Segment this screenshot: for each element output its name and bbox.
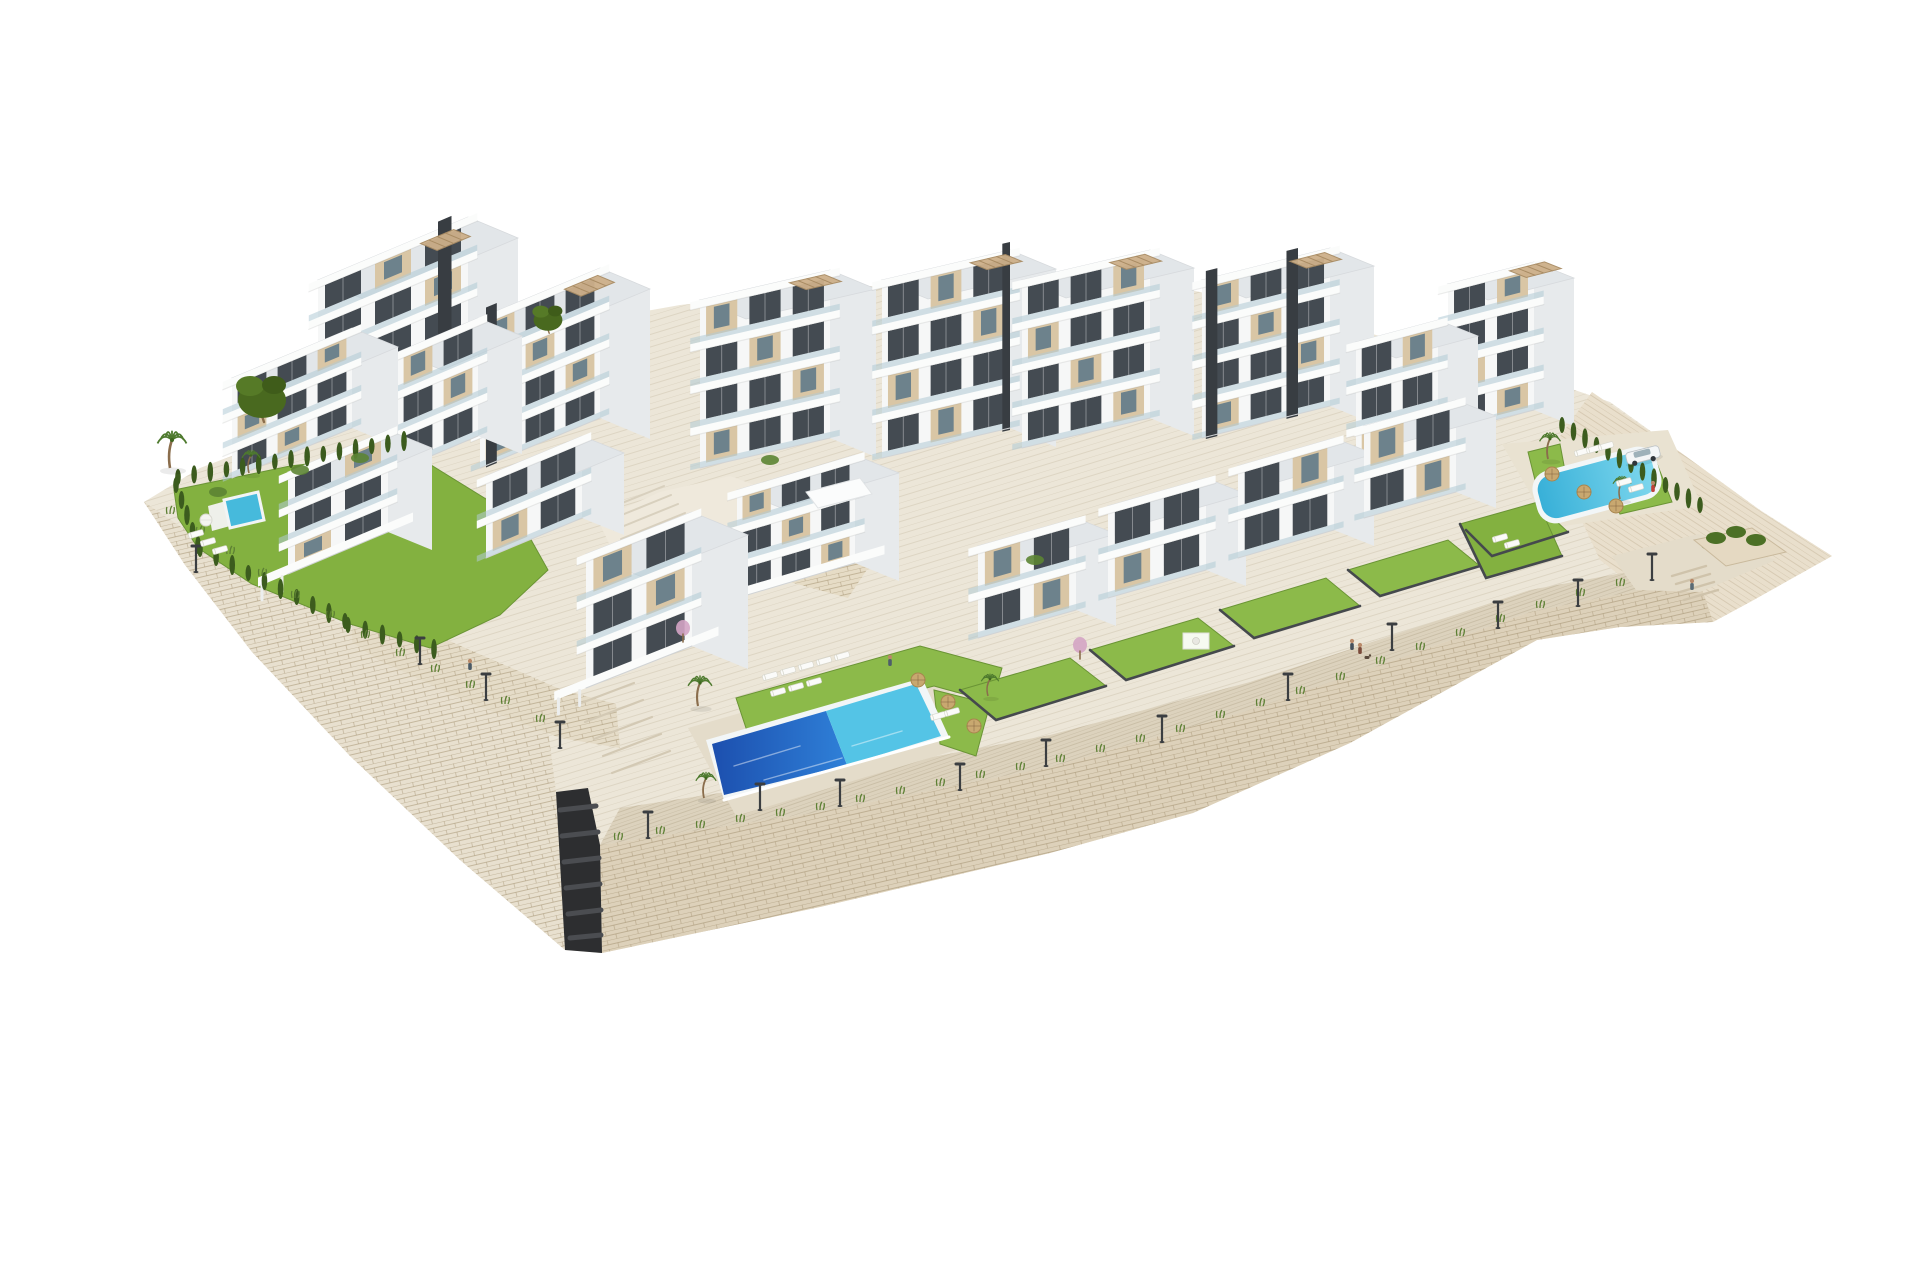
cypress-tree <box>401 431 407 451</box>
window <box>994 546 1012 577</box>
person-body <box>1690 583 1694 590</box>
cypress-tree <box>1617 448 1623 468</box>
person-body <box>1651 485 1655 492</box>
cypress-tree <box>320 446 326 462</box>
gazebo-table <box>1193 638 1200 645</box>
cypress-tree <box>380 625 386 645</box>
window <box>1216 401 1231 424</box>
cypress-tree <box>1582 428 1588 448</box>
cypress-tree <box>256 454 262 474</box>
cypress-tree <box>191 465 197 483</box>
palm-shadow <box>690 706 711 712</box>
window <box>1216 283 1231 306</box>
window <box>1078 357 1093 383</box>
person-head <box>1350 639 1354 643</box>
cypress-tree <box>397 631 403 647</box>
window <box>714 303 730 329</box>
cypress-tree <box>207 462 213 482</box>
pine-canopy <box>262 376 286 394</box>
window <box>1124 552 1142 583</box>
palm-crown <box>250 454 252 456</box>
cypress-tree <box>1559 417 1565 433</box>
dog-body <box>1365 656 1370 659</box>
straw-umbrella <box>941 695 955 709</box>
window <box>714 429 730 455</box>
garden-gazebo <box>1183 633 1209 649</box>
window <box>1425 460 1442 491</box>
pine-canopy <box>532 306 549 318</box>
window <box>757 335 773 361</box>
cypress-tree <box>431 639 437 659</box>
shrub <box>351 453 369 463</box>
person-head <box>1690 579 1694 583</box>
palm-crown <box>705 777 708 780</box>
straw-umbrella <box>1577 485 1591 499</box>
dog-head <box>1369 654 1371 656</box>
palm-crown <box>698 681 701 684</box>
small-garden-pool <box>224 492 264 528</box>
palm-trunk <box>169 440 172 468</box>
window <box>981 308 996 336</box>
person-body <box>888 659 892 666</box>
planter-shrub <box>1746 534 1766 546</box>
window <box>1043 578 1061 609</box>
cypress-tree <box>179 491 185 509</box>
building-right-back-slab-b <box>1192 246 1374 441</box>
palm-shadow <box>244 474 260 478</box>
person-body <box>1350 643 1354 650</box>
straw-umbrella <box>967 719 981 733</box>
architectural-render-aerial-residential-complex <box>0 0 1920 1280</box>
planter-shrub <box>1726 526 1746 538</box>
cypress-tree <box>337 442 343 460</box>
pine-canopy <box>236 376 264 396</box>
person <box>468 659 472 670</box>
stair-core <box>1002 242 1010 432</box>
straw-umbrella <box>1545 467 1559 481</box>
window <box>1410 334 1425 361</box>
cypress-tree <box>304 446 310 466</box>
cypress-tree <box>224 461 230 477</box>
shrub <box>209 487 227 497</box>
person <box>1651 481 1655 492</box>
person <box>1350 639 1354 650</box>
window <box>1258 312 1273 335</box>
cypress-tree <box>246 565 252 581</box>
straw-umbrella <box>1609 499 1623 513</box>
window <box>801 367 817 393</box>
person <box>1358 643 1362 654</box>
person-head <box>1358 643 1362 647</box>
window <box>938 407 953 435</box>
shrub <box>291 465 309 475</box>
render-canvas <box>0 0 1920 1280</box>
cypress-tree <box>1686 488 1692 508</box>
palm-shadow <box>698 799 716 804</box>
stair-core <box>1206 268 1218 439</box>
window <box>1301 340 1316 363</box>
palm-tree <box>158 431 187 474</box>
person-body <box>1358 647 1362 654</box>
stairwell-step <box>570 935 601 938</box>
palm-shadow <box>160 468 186 475</box>
palm-crown <box>989 678 991 680</box>
white-parasol <box>200 514 212 526</box>
cypress-tree <box>240 458 246 476</box>
palm-shadow <box>1542 459 1561 464</box>
planter-shrub <box>1706 532 1726 544</box>
window <box>896 372 911 400</box>
cypress-tree <box>1674 483 1680 501</box>
cypress-tree <box>229 555 235 575</box>
cypress-tree <box>1663 477 1669 493</box>
straw-umbrella <box>911 673 925 687</box>
cypress-tree <box>1571 423 1577 441</box>
cypress-tree <box>278 579 284 599</box>
cypress-tree <box>272 454 278 470</box>
side-face <box>1150 250 1194 436</box>
cypress-tree <box>288 450 294 468</box>
person <box>888 655 892 666</box>
cypress-tree <box>310 596 316 614</box>
cypress-tree <box>184 505 190 525</box>
person-head <box>1651 481 1655 485</box>
cypress-tree <box>173 477 179 493</box>
palm-shadow <box>983 697 999 701</box>
cypress-tree <box>345 617 351 633</box>
palm-crown <box>170 438 174 442</box>
building-center-back-slab-a <box>690 268 876 470</box>
window <box>1036 325 1051 351</box>
window <box>1121 389 1136 415</box>
stair-core <box>1286 248 1298 419</box>
cypress-tree <box>1697 497 1703 513</box>
window <box>938 273 953 301</box>
cypress-tree <box>385 435 391 453</box>
building-right-back-slab-a <box>1012 248 1194 451</box>
pine-canopy <box>548 306 562 317</box>
shrub <box>1026 555 1044 565</box>
cypress-tree <box>369 438 375 454</box>
shrub <box>761 455 779 465</box>
window <box>1301 452 1318 483</box>
person-body <box>468 663 472 670</box>
palm-crown <box>1549 437 1552 440</box>
person <box>1690 579 1694 590</box>
window <box>1379 427 1396 458</box>
person-head <box>468 659 472 663</box>
person-head <box>888 655 892 659</box>
